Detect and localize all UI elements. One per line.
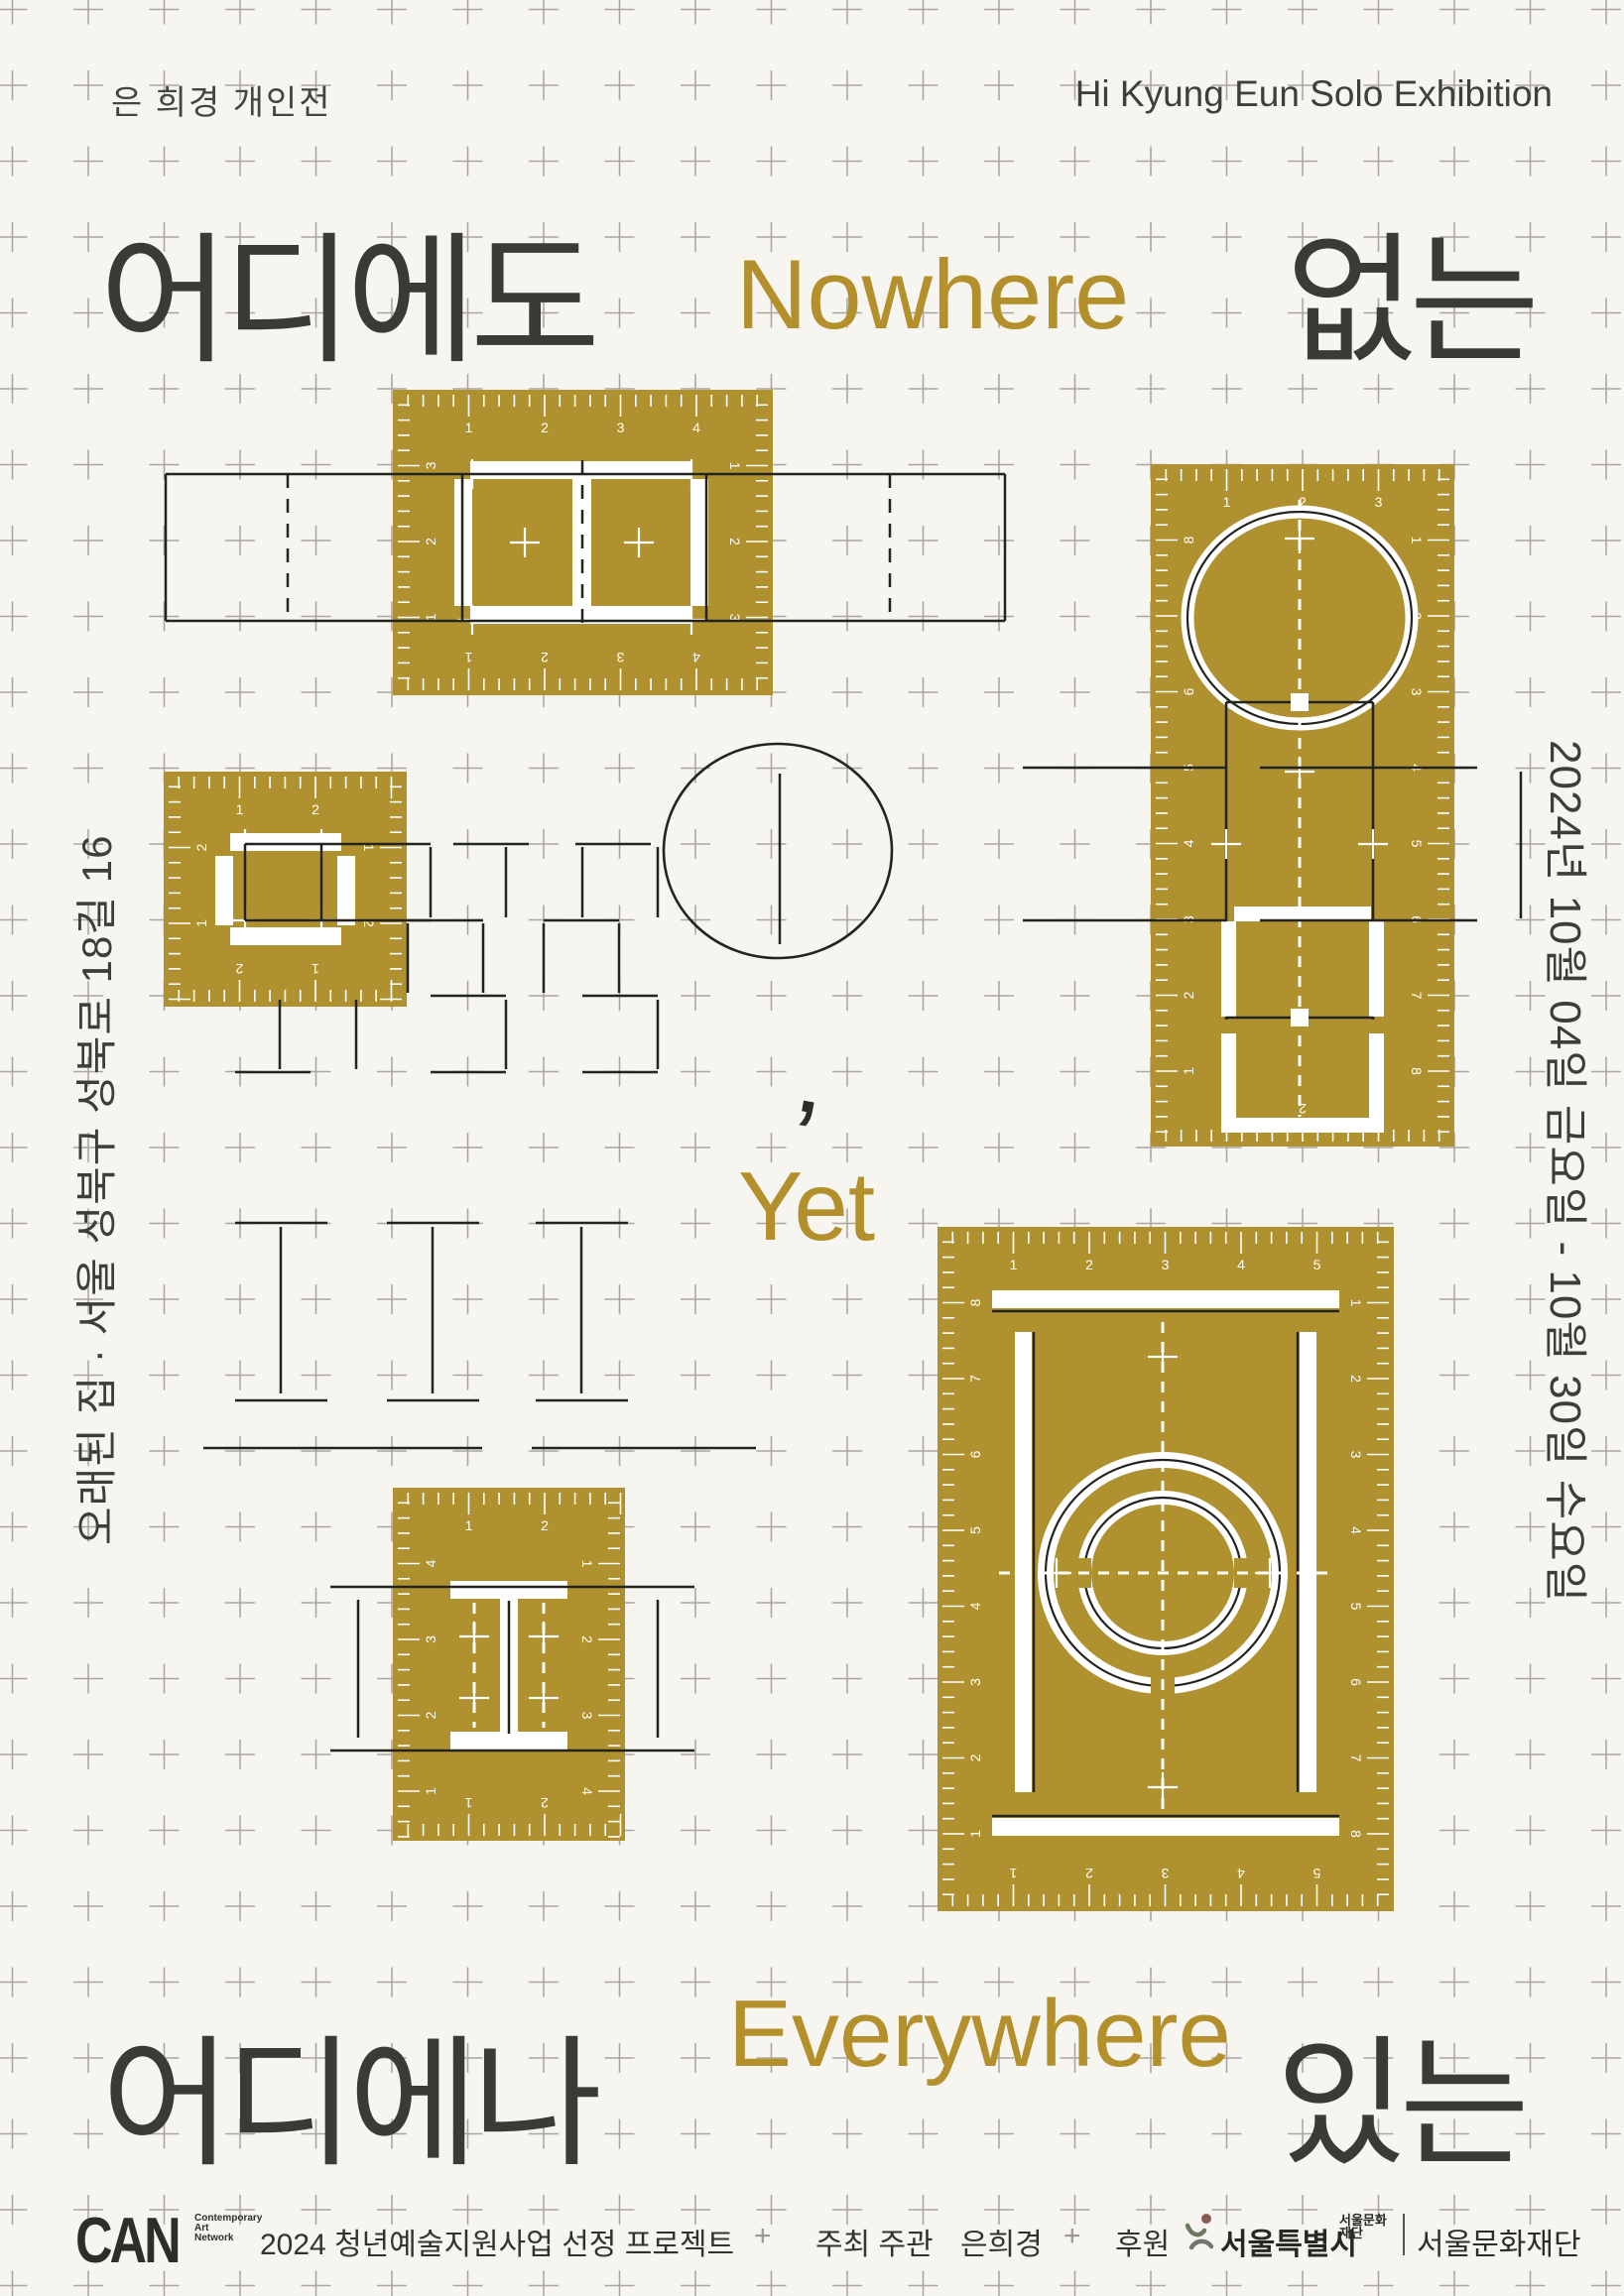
footer-plus-mark-1: + [754, 2220, 772, 2253]
host-name: 은희경 [960, 2220, 1043, 2263]
title-yet-english: Yet [738, 1150, 875, 1263]
seoul-city-logo-icon [1183, 2210, 1216, 2255]
seoul-city-name: 서울특별시 [1220, 2220, 1357, 2263]
can-logo: CAN [75, 2204, 179, 2278]
footer-plus-mark-2: + [1063, 2220, 1081, 2253]
poster: 1234123432112312312387654321123456781221… [0, 0, 1624, 2296]
sfac-name: 서울문화재단 [1417, 2220, 1581, 2263]
host-label: 주최 주관 [815, 2220, 934, 2263]
title-everywhere-english: Everywhere [728, 1980, 1231, 2089]
title-everywhere-korean-left: 어디에나 [101, 1990, 595, 2195]
venue-address-vertical: 오래된 집 · 서울 성북구 성북로 18길 16 [63, 633, 124, 1545]
exhibition-dates-vertical: 2024년 10월 04일 금요일 - 10월 30일 수요일 [1538, 740, 1601, 1692]
title-everywhere-korean-right: 있는 [1276, 1990, 1523, 2195]
exhibition-subtitle-korean: 은 희경 개인전 [111, 75, 332, 124]
sfac-mark-line2: 재단 [1339, 2227, 1409, 2239]
exhibition-subtitle-english: Hi Kyung Eun Solo Exhibition [1075, 73, 1553, 115]
title-nowhere-english: Nowhere [736, 238, 1129, 351]
sponsor-label: 후원 [1115, 2220, 1170, 2263]
sfac-logo-mark: 서울문화 재단 [1339, 2214, 1409, 2239]
project-credit-text: 2024 청년예술지원사업 선정 프로젝트 [260, 2220, 734, 2263]
title-nowhere-korean-left: 어디에도 [99, 186, 593, 392]
title-nowhere-korean-right: 없는 [1286, 186, 1533, 392]
